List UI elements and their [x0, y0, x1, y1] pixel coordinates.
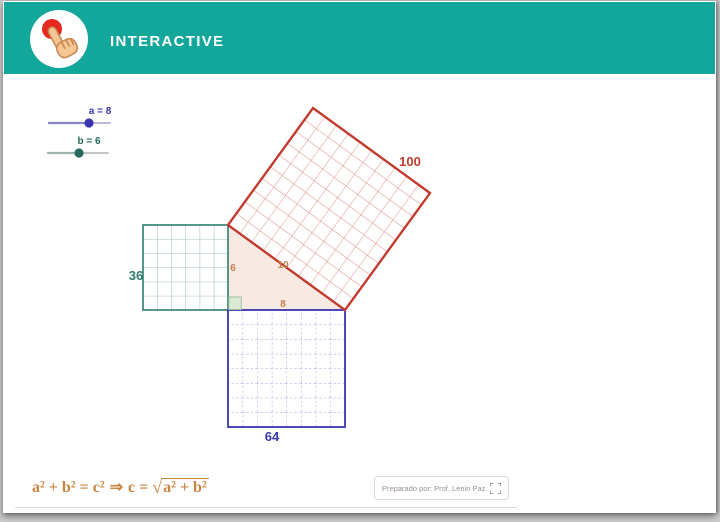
slider-b[interactable]: b = 6 [48, 136, 108, 158]
slider-b-handle[interactable] [74, 148, 83, 157]
pythagoras-formula: a² + b² = c²⇒c =√a² + b² [32, 476, 209, 497]
header-title: INTERACTIVE [110, 33, 224, 50]
label-area-green: 36 [129, 268, 143, 283]
right-angle-marker [229, 297, 242, 310]
implies-arrow: ⇒ [110, 479, 123, 496]
label-hypotenuse: 10 [277, 260, 289, 271]
slider-a-handle[interactable] [84, 118, 93, 127]
formula-mid: c = [128, 479, 148, 496]
radical-sign: √ [152, 477, 162, 498]
slider-a[interactable]: a = 8 [49, 106, 112, 128]
square-blue-64 [228, 310, 345, 427]
fullscreen-icon[interactable] [490, 483, 501, 494]
formula-radicand: a² + b² [161, 478, 209, 497]
square-green-36 [143, 225, 228, 310]
hand-click-logo [27, 7, 91, 71]
label-area-red: 100 [399, 154, 421, 169]
label-horizontal-leg: 8 [280, 299, 286, 310]
geometry-canvas: 36 64 100 6 10 8 a = 8 b = 6 [0, 74, 720, 508]
screen: INTERACTIVE 36 64 100 [0, 0, 720, 522]
slider-a-label: a = 8 [89, 106, 112, 117]
formula-lhs: a² + b² = c² [32, 479, 105, 496]
header-bar: INTERACTIVE [4, 2, 715, 74]
label-vertical-leg: 6 [230, 263, 236, 274]
credit-text: Preparado por: Prof. Lenin Paz [382, 484, 485, 493]
applet-bottom-border [15, 507, 517, 508]
credit-box: Preparado por: Prof. Lenin Paz [374, 476, 509, 500]
label-area-blue: 64 [265, 429, 280, 444]
slider-b-label: b = 6 [77, 136, 101, 147]
